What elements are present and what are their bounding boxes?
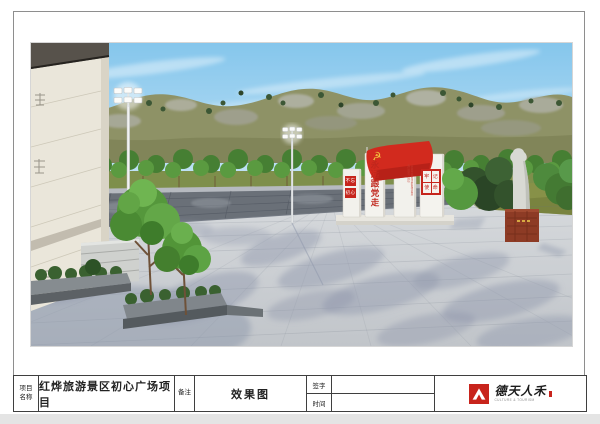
project-label-line2: 名称 <box>20 394 33 402</box>
pedestal-inscription <box>517 220 530 222</box>
date-field <box>332 394 434 411</box>
signature-field <box>332 376 434 394</box>
project-name-label: 项目 名称 <box>14 376 38 411</box>
brand-seal <box>549 391 552 397</box>
company-logo: 德天人禾 CULTURE & TOURISM <box>434 376 586 411</box>
logo-mark-icon <box>469 384 489 404</box>
signature-date-labels: 签字 时间 <box>306 376 331 411</box>
brand-caption: CULTURE & TOURISM <box>494 398 534 402</box>
title-block: 项目 名称 红烨旅游景区初心广场项目 备注 效果图 签字 时间 德天人禾 <box>13 375 587 412</box>
brand-name: 德天人禾 <box>494 385 546 397</box>
remark-label: 备注 <box>174 376 194 411</box>
remark-value: 效果图 <box>194 376 306 411</box>
signature-label: 签字 <box>307 376 331 394</box>
drawing-sheet: 不忘 初心 永远跟党走 人民对美好生活的向往就是我们的奋斗目标 牢 记 使 命 … <box>0 0 600 414</box>
project-name-value: 红烨旅游景区初心广场项目 <box>38 376 174 411</box>
date-label: 时间 <box>307 394 331 411</box>
signature-date-fields <box>331 376 434 411</box>
plaza-scene <box>31 43 572 346</box>
mountain-monogram-icon <box>471 386 487 402</box>
rendering-image: 不忘 初心 永远跟党走 人民对美好生活的向往就是我们的奋斗目标 牢 记 使 命 … <box>30 42 573 347</box>
project-label-line1: 项目 <box>20 385 33 393</box>
